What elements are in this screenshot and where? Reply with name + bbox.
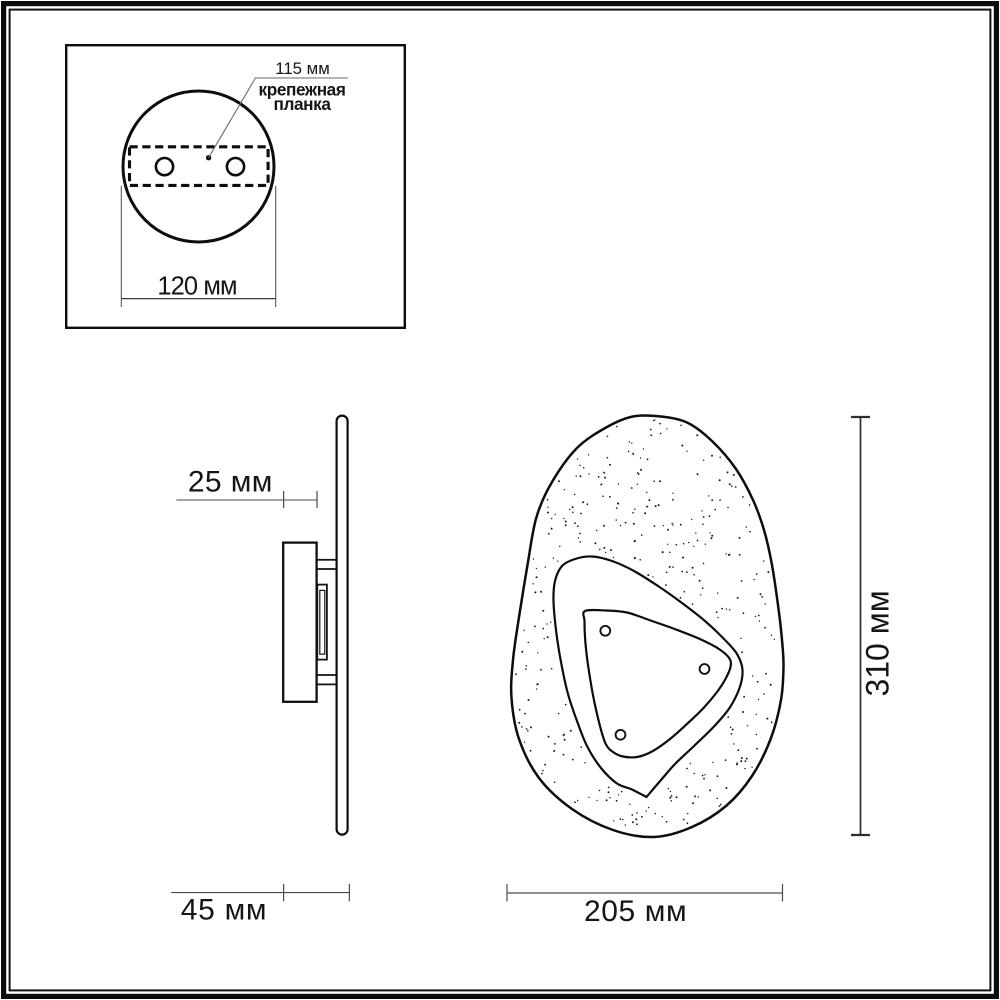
- svg-text:310 мм: 310 мм: [860, 590, 896, 696]
- svg-text:205 мм: 205 мм: [584, 895, 687, 928]
- svg-text:120 мм: 120 мм: [157, 273, 236, 301]
- svg-text:планка: планка: [273, 94, 331, 114]
- svg-text:45 мм: 45 мм: [181, 894, 267, 927]
- svg-text:25 мм: 25 мм: [188, 465, 273, 498]
- svg-text:115 мм: 115 мм: [275, 59, 330, 78]
